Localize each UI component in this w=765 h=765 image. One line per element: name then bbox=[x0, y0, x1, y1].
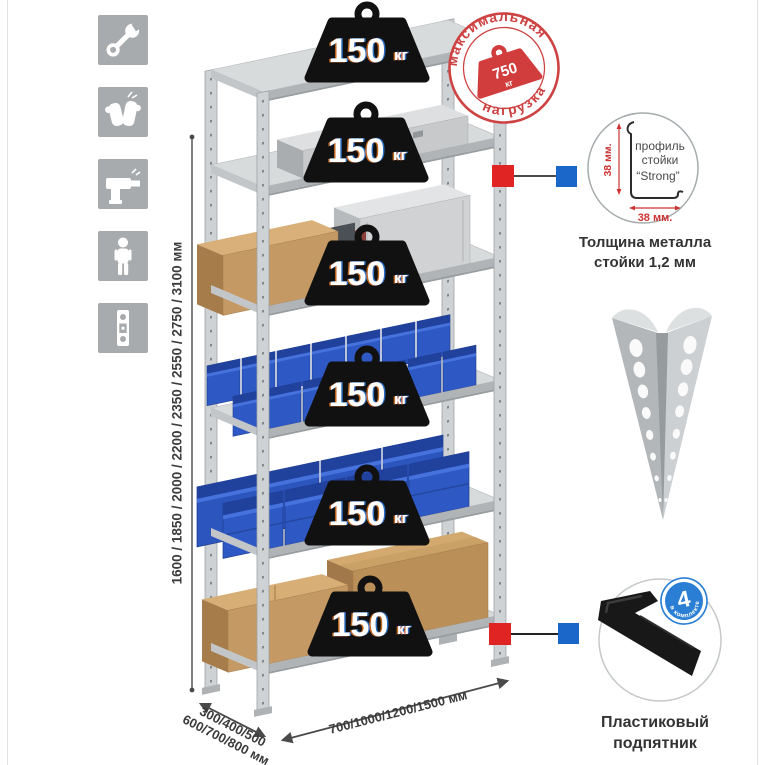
svg-text:38 мм.: 38 мм. bbox=[602, 143, 614, 176]
product-infographic: 150 кг 150 кг 150 кг bbox=[0, 0, 765, 765]
blue-marker-top bbox=[556, 166, 577, 187]
corner-post-image bbox=[612, 308, 712, 520]
svg-text:150: 150 bbox=[329, 495, 386, 533]
svg-text:кг: кг bbox=[394, 270, 408, 287]
svg-text:кг: кг bbox=[394, 510, 408, 527]
svg-text:150: 150 bbox=[329, 255, 386, 293]
svg-text:кг: кг bbox=[394, 47, 408, 64]
svg-text:150: 150 bbox=[329, 32, 386, 70]
svg-text:кг: кг bbox=[397, 621, 411, 638]
load-weight-1: 150 кг bbox=[309, 5, 425, 78]
svg-text:150: 150 bbox=[332, 606, 389, 644]
profile-detail-circle: 38 мм. 38 мм. профиль стойки “Strong” bbox=[588, 113, 698, 224]
foot-callout-connector bbox=[489, 623, 579, 645]
svg-text:150: 150 bbox=[329, 376, 386, 414]
plastic-foot-circle: 4 в комплекте bbox=[598, 574, 721, 701]
height-dimension-label: 1600 / 1850 / 2000 / 2200 / 2350 / 2550 … bbox=[170, 242, 185, 585]
height-dimension-line bbox=[190, 135, 195, 693]
profile-caption: Толщина металла стойки 1,2 мм bbox=[558, 233, 732, 273]
profile-callout-connector bbox=[492, 165, 577, 187]
svg-text:кг: кг bbox=[394, 391, 408, 408]
svg-text:150: 150 bbox=[328, 132, 385, 170]
foot-caption: Пластиковый подпятник bbox=[568, 712, 742, 754]
svg-text:“Strong”: “Strong” bbox=[636, 169, 679, 183]
svg-text:кг: кг bbox=[393, 147, 407, 164]
red-marker-top bbox=[492, 165, 514, 187]
svg-text:стойки: стойки bbox=[642, 153, 679, 167]
rack-illustration: 150 кг 150 кг 150 кг bbox=[0, 0, 765, 765]
svg-text:профиль: профиль bbox=[635, 139, 685, 153]
svg-text:38 мм.: 38 мм. bbox=[638, 212, 673, 224]
blue-marker-bottom bbox=[558, 623, 579, 644]
red-marker-bottom bbox=[489, 623, 511, 645]
